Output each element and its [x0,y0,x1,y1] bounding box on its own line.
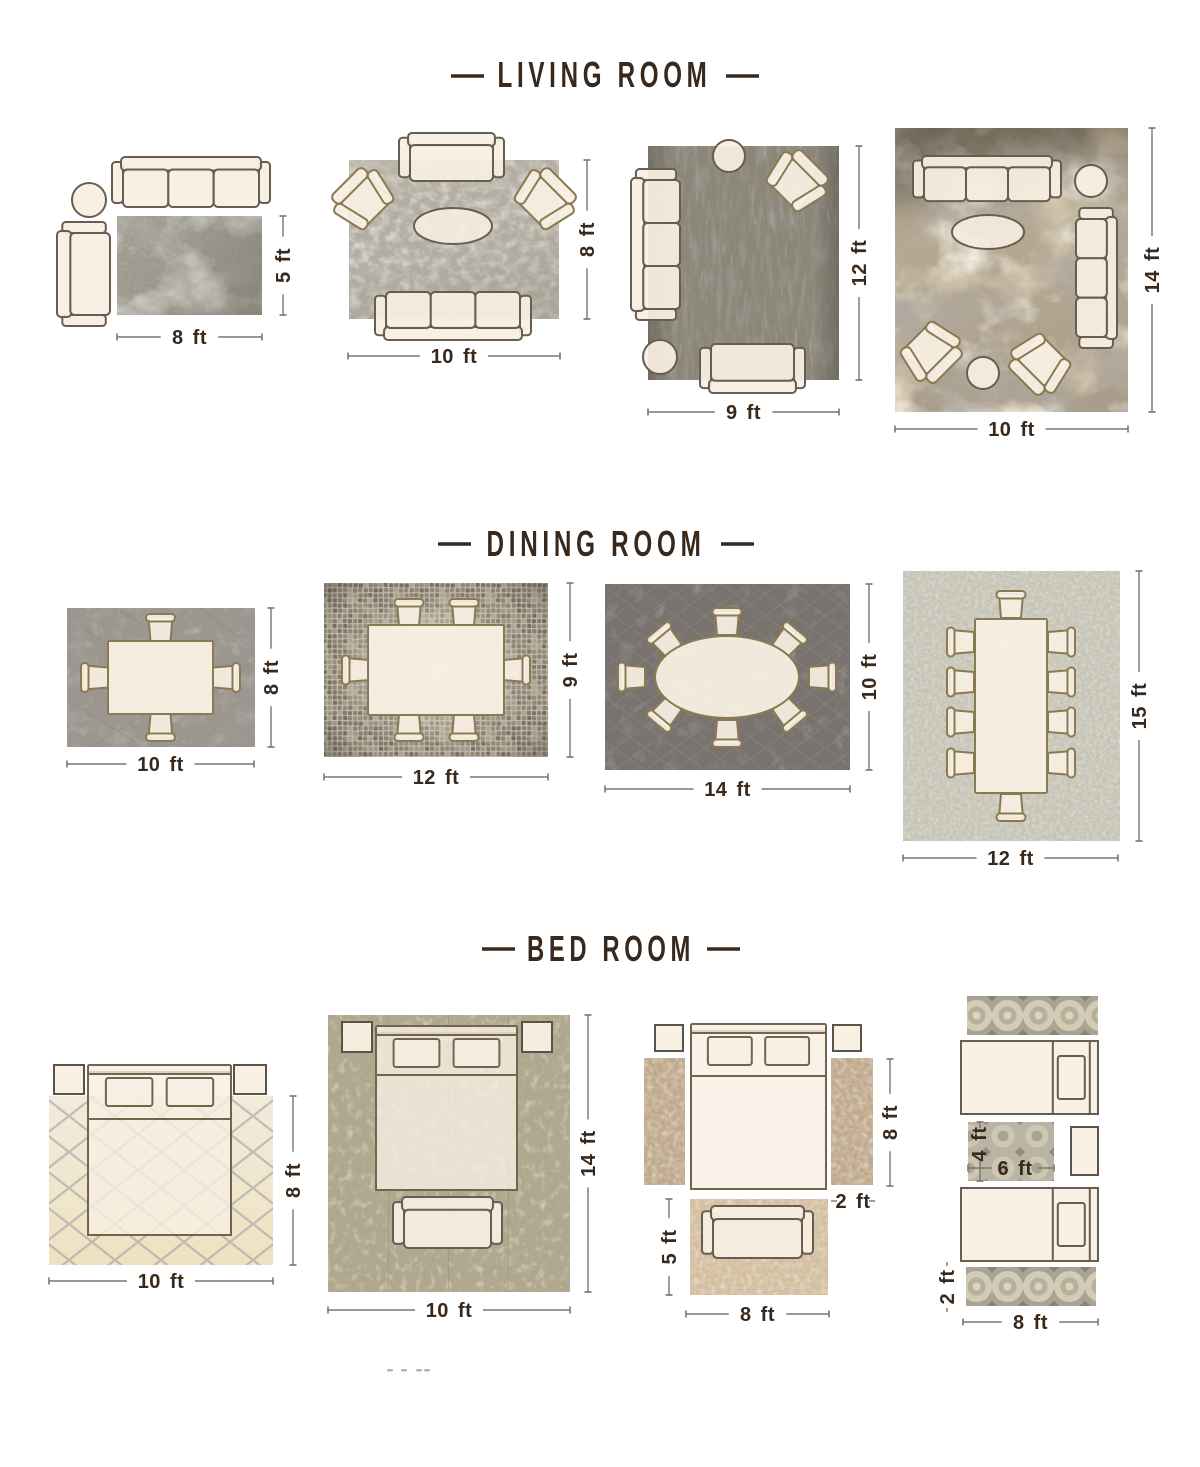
svg-text:5 ft: 5 ft [273,248,295,283]
svg-text:2 ft: 2 ft [937,1270,959,1305]
svg-text:5 ft: 5 ft [659,1230,681,1265]
svg-text:LIVING ROOM: LIVING ROOM [498,54,712,95]
svg-text:10 ft: 10 ft [988,419,1035,441]
svg-text:14 ft: 14 ft [1142,247,1164,294]
svg-text:12 ft: 12 ft [987,848,1034,870]
svg-text:8 ft: 8 ft [261,660,283,695]
svg-text:2 ft: 2 ft [836,1191,871,1213]
svg-text:10 ft: 10 ft [426,1300,473,1322]
svg-text:9 ft: 9 ft [560,653,582,688]
svg-text:6 ft: 6 ft [998,1158,1033,1180]
svg-text:10 ft: 10 ft [138,1271,185,1293]
svg-text:15 ft: 15 ft [1129,683,1151,730]
svg-text:14 ft: 14 ft [578,1130,600,1177]
svg-text:10 ft: 10 ft [137,754,184,776]
svg-text:10 ft: 10 ft [431,346,478,368]
svg-text:8 ft: 8 ft [1013,1312,1048,1334]
svg-text:9 ft: 9 ft [726,402,761,424]
svg-text:DINING ROOM: DINING ROOM [487,523,706,564]
svg-text:8 ft: 8 ft [172,327,207,349]
svg-text:8 ft: 8 ft [577,222,599,257]
svg-text:8 ft: 8 ft [880,1105,902,1140]
svg-text:12 ft: 12 ft [413,767,460,789]
svg-text:8 ft: 8 ft [740,1304,775,1326]
svg-text:10 ft: 10 ft [859,654,881,701]
svg-text:4 ft: 4 ft [969,1127,991,1162]
svg-text:14 ft: 14 ft [704,779,751,801]
svg-text:BED ROOM: BED ROOM [527,928,695,969]
svg-text:8 ft: 8 ft [283,1163,305,1198]
svg-text:12 ft: 12 ft [849,240,871,287]
